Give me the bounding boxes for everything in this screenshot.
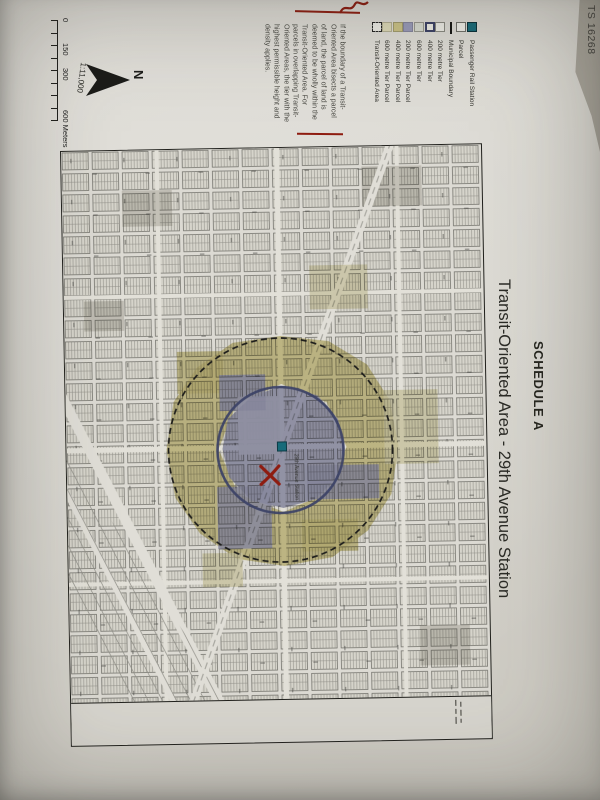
paper-sheet: 0 150 300 600 Meters 1:11,000 N If the b…	[0, 0, 600, 800]
legend-swatch-icon	[393, 22, 403, 32]
legend-item-label: 600 metre Tier	[415, 40, 422, 82]
legend-item: 400 metre Tier	[424, 22, 436, 32]
legend-item-label: 400 metre Tier	[426, 40, 433, 82]
map-canvas: 29th Avenue Station	[61, 144, 490, 703]
station-label: 29th Avenue Station	[293, 454, 300, 501]
tier-200-parcel-extension	[219, 374, 266, 411]
legend-item-label: Municipal Boundary	[447, 40, 454, 97]
legend-swatch-icon	[425, 22, 435, 32]
tier-200-parcel-extension	[307, 464, 380, 499]
legend-item-label: 600 metre Tier Parcel	[383, 40, 390, 102]
legend-swatch-icon	[414, 22, 424, 32]
legend-item: 200 metre Tier Parcel	[402, 22, 414, 32]
legend-item: Transit-Oriented Area	[371, 22, 383, 32]
legend-item-label: 200 metre Tier Parcel	[404, 40, 411, 102]
legend-swatch-icon	[382, 22, 392, 32]
legend-item: Passenger Rail Station	[466, 22, 478, 32]
station-marker-icon	[277, 442, 286, 451]
legend-item-label: 400 metre Tier Parcel	[394, 40, 401, 102]
legend-swatch-icon	[467, 22, 477, 32]
legend-item: 200 metre Tier	[434, 22, 446, 32]
tier-200-parcel-extension	[217, 486, 272, 549]
legend-item-label: 200 metre Tier	[436, 40, 443, 82]
tier-600-parcel-area	[309, 264, 368, 309]
legend-item-label: Passenger Rail Station	[468, 40, 475, 106]
document-stamp: TS 16268	[585, 5, 597, 55]
legend-item: 400 metre Tier Parcel	[392, 22, 404, 32]
legend-swatch-icon	[450, 22, 452, 34]
legend-item: Parcel	[455, 22, 467, 32]
legend-swatch-icon	[456, 22, 466, 32]
legend-swatch-icon	[435, 22, 445, 32]
tier-600-parcel-area	[202, 553, 243, 588]
legend-item: Municipal Boundary	[445, 22, 457, 34]
legend-item: 600 metre Tier Parcel	[381, 22, 393, 32]
legend-swatch-icon	[372, 22, 382, 32]
map-caption-smudge	[71, 696, 491, 743]
legend-swatch-icon	[403, 22, 413, 32]
map-caption-strip	[71, 695, 492, 745]
legend-item-label: Parcel	[457, 40, 464, 58]
page-title: Transit-Oriented Area - 29th Avenue Stat…	[494, 279, 513, 598]
map-frame: 29th Avenue Station	[60, 143, 493, 747]
schedule-label: SCHEDULE A	[531, 341, 546, 431]
legend-item: 600 metre Tier	[413, 22, 425, 32]
legend-item-label: Transit-Oriented Area	[373, 40, 380, 102]
tier-400-parcel-extension	[302, 519, 359, 552]
